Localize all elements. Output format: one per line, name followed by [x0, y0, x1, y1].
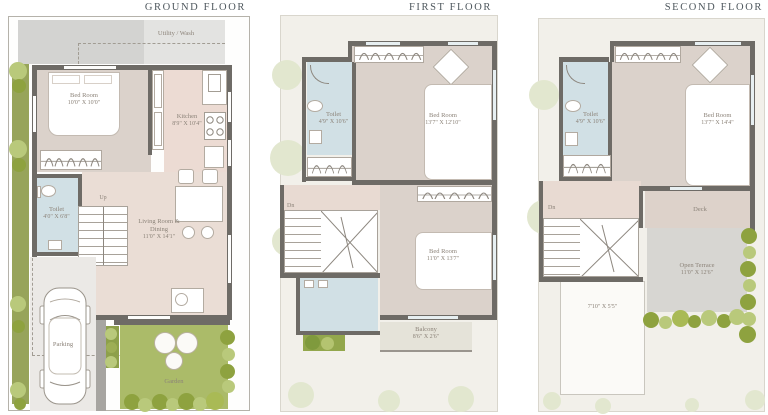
closet-shelf-icon: [154, 112, 162, 146]
stair-cross-icon: [321, 211, 378, 273]
room-name: Open Terrace: [647, 262, 747, 270]
room-name: Balcony: [380, 326, 472, 334]
shrub-icon: [643, 312, 659, 328]
room-name: Toilet: [315, 111, 352, 119]
room-label-bedroom: Bed Room 10'0" X 10'0": [44, 92, 124, 108]
shrub-icon: [222, 348, 235, 361]
shrub-icon: [740, 261, 756, 277]
shrub-icon: [193, 397, 207, 411]
wall: [302, 57, 306, 182]
fridge-icon: [204, 146, 224, 168]
room-name: Kitchen: [164, 113, 210, 121]
ground-foliage: [288, 382, 314, 408]
shrub-icon: [688, 315, 701, 328]
shrub-icon: [10, 296, 26, 312]
window: [228, 235, 231, 283]
room-dims: 13'7" X 12'10": [408, 120, 478, 128]
wall: [639, 186, 643, 228]
room-dims: 8'6" X 2'6": [380, 334, 472, 342]
shrub-icon: [14, 398, 26, 410]
wardrobe-icon: [417, 186, 492, 202]
hanger-rail-icon: [308, 158, 351, 176]
wall: [280, 273, 380, 278]
stairs-icon: [543, 218, 639, 277]
shrub-icon: [138, 398, 152, 412]
wall: [302, 57, 352, 62]
window: [33, 96, 36, 132]
setback-line-v: [78, 43, 79, 64]
room-dims: 4'9" X 10'6": [572, 119, 609, 127]
bed-icon: [424, 84, 492, 180]
parking-label: Parking: [30, 341, 96, 349]
window: [751, 75, 754, 125]
room-label-bedroom: Bed Room 13'7" X 14'4": [685, 112, 750, 128]
wall: [32, 174, 80, 178]
room-label-terrace: Open Terrace 11'0" X 12'6": [647, 262, 747, 278]
stairs-label: Up: [78, 195, 128, 201]
sink-icon: [309, 130, 322, 144]
shrub-icon: [12, 158, 26, 172]
room-dims: 10'0" X 10'0": [44, 100, 124, 108]
ground-foliage: [595, 398, 611, 414]
pillow-icon: [84, 75, 112, 84]
hanger-rail-icon: [418, 187, 491, 201]
wall: [296, 273, 300, 335]
second-floor-title: SECOND FLOOR: [665, 2, 763, 13]
ground-foliage: [272, 60, 302, 90]
sink-icon: [208, 74, 221, 92]
deck-label: Deck: [645, 206, 755, 214]
room-name: Bed Room: [44, 92, 124, 100]
shrub-icon: [729, 309, 745, 325]
wardrobe-icon: [615, 46, 681, 63]
shrub-icon: [659, 316, 672, 329]
pillow-icon: [52, 75, 80, 84]
floor-hall: [284, 185, 380, 210]
bed-icon: [685, 84, 750, 186]
garden-label: Garden: [120, 378, 228, 386]
room-name: Toilet: [35, 206, 78, 214]
wall: [352, 180, 492, 185]
window: [448, 42, 478, 45]
shrub-icon: [743, 246, 756, 259]
room-label-toilet1: Toilet 4'9" X 10'6": [315, 111, 352, 127]
hanger-rail-icon: [564, 156, 610, 176]
wall: [559, 177, 611, 181]
wc-icon: [41, 185, 56, 197]
shrub-icon: [10, 382, 26, 398]
ground-foliage: [378, 390, 400, 412]
wall: [302, 177, 352, 181]
dining-chair-icon: [178, 169, 194, 184]
window: [695, 42, 741, 45]
shrub-icon: [9, 62, 27, 80]
window: [228, 140, 231, 166]
closet-shelf-icon: [154, 74, 162, 108]
shrub-icon: [206, 392, 224, 410]
shrub-icon: [305, 335, 320, 350]
tree-icon: [176, 332, 198, 354]
setback-line: [78, 43, 225, 44]
window: [670, 187, 702, 190]
shrub-icon: [222, 380, 235, 393]
window: [493, 70, 496, 120]
round-table-icon: [175, 293, 188, 306]
wardrobe-icon: [354, 46, 424, 63]
dining-chair-icon: [202, 169, 218, 184]
hanger-rail-icon: [616, 47, 680, 62]
room-name: Bed Room: [408, 112, 478, 120]
utility-label: Utility / Wash: [136, 30, 216, 38]
window: [366, 42, 400, 45]
wardrobe-icon: [40, 150, 102, 170]
ground-foliage: [543, 392, 561, 410]
stairs-label: Dn: [548, 205, 555, 211]
room-label-balcony: Balcony 8'6" X 2'6": [380, 326, 472, 342]
stair-cross-icon: [580, 219, 639, 277]
wall: [610, 41, 614, 62]
shrub-icon: [220, 330, 235, 345]
wall: [750, 41, 755, 231]
room-label-kitchen: Kitchen 8'9" X 10'4": [164, 113, 210, 129]
sink-icon: [48, 240, 62, 250]
wall: [539, 277, 643, 282]
room-dims: 11'0" X 14'1": [116, 234, 202, 242]
window: [128, 316, 170, 319]
dining-table-icon: [175, 186, 223, 222]
room-label-living: Living Room & Dining 11'0" X 14'1": [116, 218, 202, 242]
wall: [559, 57, 609, 62]
shrub-icon: [12, 320, 25, 333]
ground-foliage: [529, 80, 559, 110]
tree-icon: [165, 352, 183, 370]
wall: [352, 62, 356, 182]
stairs-label: Dn: [287, 203, 294, 209]
roof-dims-label: 7'10" X 5'5": [560, 304, 645, 312]
ground-foliage: [448, 386, 474, 412]
room-dims: 13'7" X 14'4": [685, 120, 750, 128]
shrub-icon: [220, 364, 235, 379]
window: [228, 92, 231, 122]
first-floor-panel: FIRST FLOOR: [278, 0, 500, 415]
shrub-icon: [672, 310, 689, 327]
wardrobe-icon: [563, 155, 611, 177]
floor-hall: [543, 181, 641, 218]
shrub-icon: [105, 356, 117, 368]
window: [64, 66, 116, 69]
wall: [32, 65, 37, 257]
room-label-toilet: Toilet 4'9" X 10'6": [572, 111, 609, 127]
lower-roof-area: [560, 281, 645, 395]
ground-foliage: [270, 140, 306, 176]
room-dims: 11'0" X 12'6": [647, 270, 747, 278]
shrub-icon: [701, 310, 717, 326]
sink-icon: [318, 280, 328, 288]
room-name: Bed Room: [685, 112, 750, 120]
shrub-icon: [739, 326, 756, 343]
wardrobe-icon: [307, 157, 352, 177]
ground-foliage: [745, 390, 765, 410]
dining-stool-icon: [201, 226, 214, 239]
shrub-icon: [106, 342, 117, 353]
room-name: Toilet: [572, 111, 609, 119]
room-name: Bed Room: [413, 248, 473, 256]
sink-icon: [565, 132, 578, 146]
room-dims: 4'0" X 6'8": [35, 214, 78, 222]
second-floor-panel: SECOND FLOOR Bed Room 13'7: [535, 0, 768, 415]
room-label-bedroom2: Bed Room 11'0" X 13'7": [413, 248, 473, 264]
room-label-toilet: Toilet 4'0" X 6'8": [35, 206, 78, 222]
room-dims: 8'9" X 10'4": [164, 121, 210, 129]
utility-area-shaded: [18, 20, 144, 64]
ground-floor-title: GROUND FLOOR: [145, 2, 246, 13]
first-floor-title: FIRST FLOOR: [409, 2, 492, 13]
shrub-icon: [740, 294, 756, 310]
sink-icon: [304, 280, 314, 288]
shrub-icon: [105, 328, 117, 340]
window: [493, 235, 496, 280]
ground-foliage: [685, 398, 699, 412]
wall: [32, 252, 80, 256]
room-name: Living Room & Dining: [129, 218, 189, 234]
hanger-rail-icon: [355, 47, 423, 62]
shrub-icon: [12, 79, 26, 93]
side-garden-strip: [12, 64, 29, 404]
room-dims: 11'0" X 13'7": [413, 256, 473, 264]
window: [408, 316, 458, 319]
shrub-icon: [743, 279, 756, 292]
stairs-icon: [284, 210, 378, 273]
shrub-icon: [741, 228, 757, 244]
shrub-icon: [9, 140, 27, 158]
hanger-rail-icon: [41, 151, 101, 169]
shrub-icon: [321, 337, 334, 350]
room-dims: 4'9" X 10'6": [315, 119, 352, 127]
room-label-bedroom1: Bed Room 13'7" X 12'10": [408, 112, 478, 128]
tree-icon: [154, 332, 176, 354]
floor-plan-sheet: { "floors": { "ground": { "title": "GROU…: [0, 0, 768, 415]
ground-floor-panel: GROUND FLOOR Utility / Wash Bed Room 10'…: [8, 0, 252, 415]
